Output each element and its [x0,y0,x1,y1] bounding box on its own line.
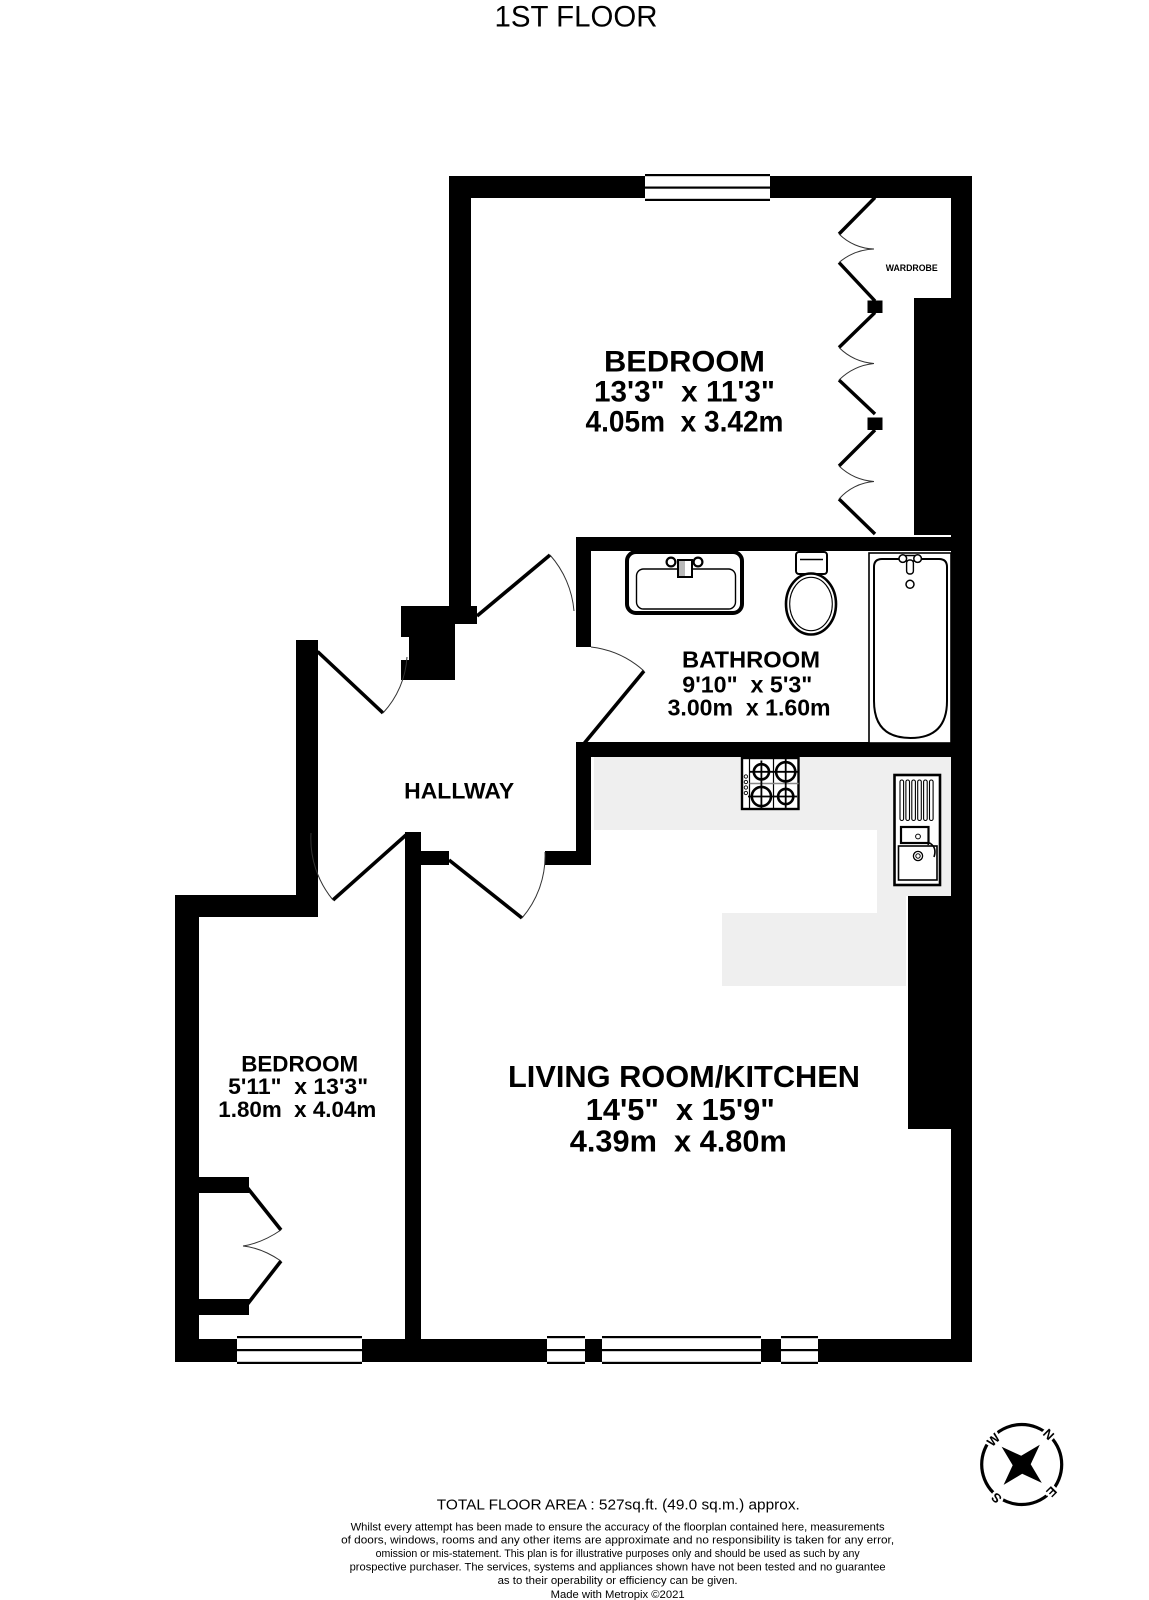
svg-text:14'5" x 15'9": 14'5" x 15'9" [586,1092,775,1127]
svg-text:9'10" x 5'3": 9'10" x 5'3" [682,671,812,697]
svg-text:1ST FLOOR: 1ST FLOOR [495,1,658,34]
svg-text:BEDROOM: BEDROOM [604,346,765,379]
svg-text:3.00m x 1.60m: 3.00m x 1.60m [668,695,831,721]
svg-text:of doors, windows, rooms and a: of doors, windows, rooms and any other i… [341,1535,894,1547]
svg-text:WARDROBE: WARDROBE [886,263,938,273]
svg-text:as to their operability or eff: as to their operability or efficiency ca… [498,1575,738,1587]
svg-text:LIVING ROOM/KITCHEN: LIVING ROOM/KITCHEN [508,1059,860,1094]
svg-text:4.05m x 3.42m: 4.05m x 3.42m [586,406,784,439]
svg-text:Made with Metropix ©2021: Made with Metropix ©2021 [551,1589,685,1600]
svg-text:prospective purchaser. The ser: prospective purchaser. The services, sys… [350,1562,886,1574]
svg-text:BATHROOM: BATHROOM [682,646,820,672]
svg-text:BEDROOM: BEDROOM [241,1052,358,1077]
svg-text:omission or mis-statement. Thi: omission or mis-statement. This plan is … [376,1548,860,1560]
svg-text:4.39m x 4.80m: 4.39m x 4.80m [570,1124,787,1159]
svg-text:TOTAL FLOOR AREA : 527sq.ft. (: TOTAL FLOOR AREA : 527sq.ft. (49.0 sq.m.… [437,1497,800,1514]
svg-text:HALLWAY: HALLWAY [404,778,514,803]
svg-text:5'11" x 13'3": 5'11" x 13'3" [228,1074,368,1099]
svg-text:1.80m x 4.04m: 1.80m x 4.04m [218,1097,376,1122]
svg-text:13'3" x 11'3": 13'3" x 11'3" [594,376,775,409]
svg-text:Whilst every attempt has been: Whilst every attempt has been made to en… [351,1521,885,1533]
